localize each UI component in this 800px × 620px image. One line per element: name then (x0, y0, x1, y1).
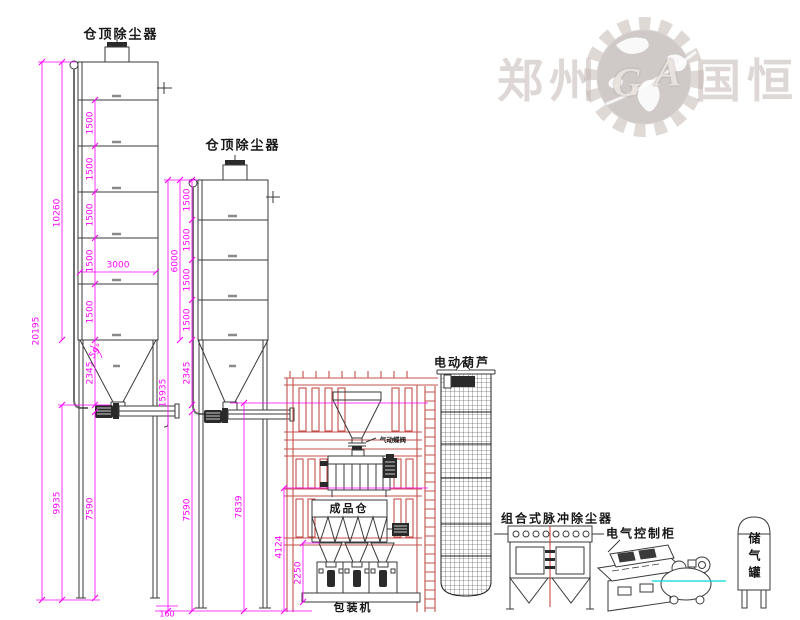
silo1-segment-dim: 1500 (87, 112, 96, 135)
silo1-segment-dim: 1500 (87, 301, 96, 324)
aux-height-dim: 4124 (276, 536, 285, 559)
watermark-right-text: 国恒 (695, 45, 799, 111)
electric-hoist-label: 电动葫芦 (434, 354, 490, 371)
silo2-collector-label: 仓顶除尘器 (205, 135, 280, 154)
silo1-collector-label: 仓顶除尘器 (83, 24, 158, 43)
silo1-segment-dim: 1500 (87, 250, 96, 273)
silo2-segment-dim: 1500 (184, 269, 193, 292)
packer-height-dim: 2250 (295, 562, 304, 585)
silo2-total-height-dim: 15935 (160, 379, 169, 408)
watermark-letter-g: G (613, 59, 642, 106)
silo2-discharge-height-dim: 7839 (236, 496, 245, 519)
air-tank-label: 储气罐 (746, 532, 763, 583)
silo1-leg-height-dim: 7590 (87, 498, 96, 521)
ladder (425, 386, 435, 612)
mixer (320, 450, 397, 497)
silo1-below-body-dim: 9935 (54, 492, 63, 515)
pulse-dust-collector-drawing (494, 526, 604, 609)
silo1-diameter-dim: 3000 (107, 262, 130, 271)
base-offset-dim: 160 (159, 610, 174, 619)
product-bin-label: 成品仓 (330, 500, 369, 516)
bucket-elevator (437, 361, 495, 596)
silo2-body-height-dim: 6000 (172, 250, 181, 273)
engineering-drawing: 仓顶除尘器 仓顶除尘器 电动葫芦 气动蝶阀 成品仓 包装机 组合式脉冲除尘器 电… (0, 0, 800, 620)
silo2-cone-height-dim: 2345 (184, 362, 193, 385)
silo1-body-height-dim: 10260 (54, 199, 63, 228)
silo2-segment-dim: 1500 (184, 229, 193, 252)
control-cabinet-label: 电气控制柜 (606, 525, 676, 542)
silo2-leg-height-dim: 7590 (184, 499, 193, 522)
feed-hopper (333, 392, 381, 454)
packing-machines (302, 543, 420, 602)
watermark-letter-a: A (655, 49, 682, 96)
silo1-cone-height-dim: 2345 (87, 362, 96, 385)
silo1-segment-dim: 1500 (87, 204, 96, 227)
silo2-segment-dim: 1500 (184, 189, 193, 212)
pulse-dust-collector-label: 组合式脉冲除尘器 (501, 510, 613, 527)
silo2-segment-dim: 1500 (184, 309, 193, 332)
packing-machine-label: 包装机 (334, 599, 373, 615)
silo1-segment-dim: 1500 (87, 158, 96, 181)
silo1-total-height-dim: 20195 (33, 317, 42, 346)
watermark-left-text: 郑州 (497, 45, 601, 111)
pneumatic-valve-label: 气动蝶阀 (380, 434, 406, 444)
